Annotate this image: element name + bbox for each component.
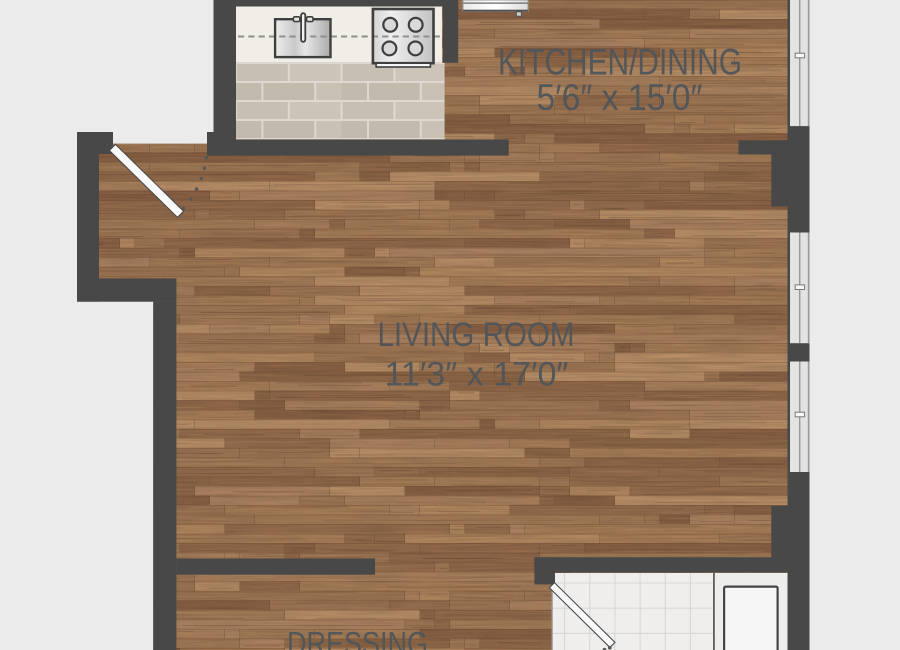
svg-text:LIVING ROOM: LIVING ROOM <box>378 316 575 354</box>
svg-text:5′6″ x 15′0″: 5′6″ x 15′0″ <box>537 76 703 118</box>
svg-text:11′3″ x 17′0″: 11′3″ x 17′0″ <box>385 356 569 394</box>
svg-text:DRESSING: DRESSING <box>287 626 428 650</box>
